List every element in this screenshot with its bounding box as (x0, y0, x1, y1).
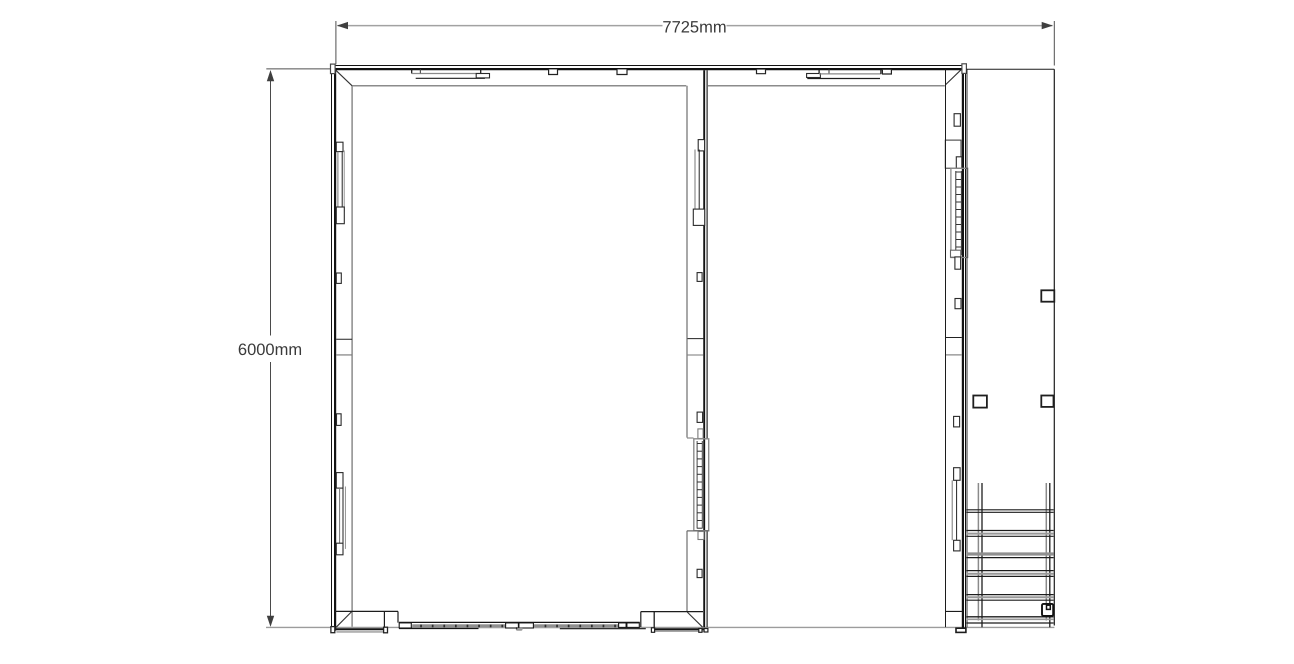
svg-text:7725mm: 7725mm (662, 18, 726, 36)
svg-text:6000mm: 6000mm (238, 341, 302, 359)
